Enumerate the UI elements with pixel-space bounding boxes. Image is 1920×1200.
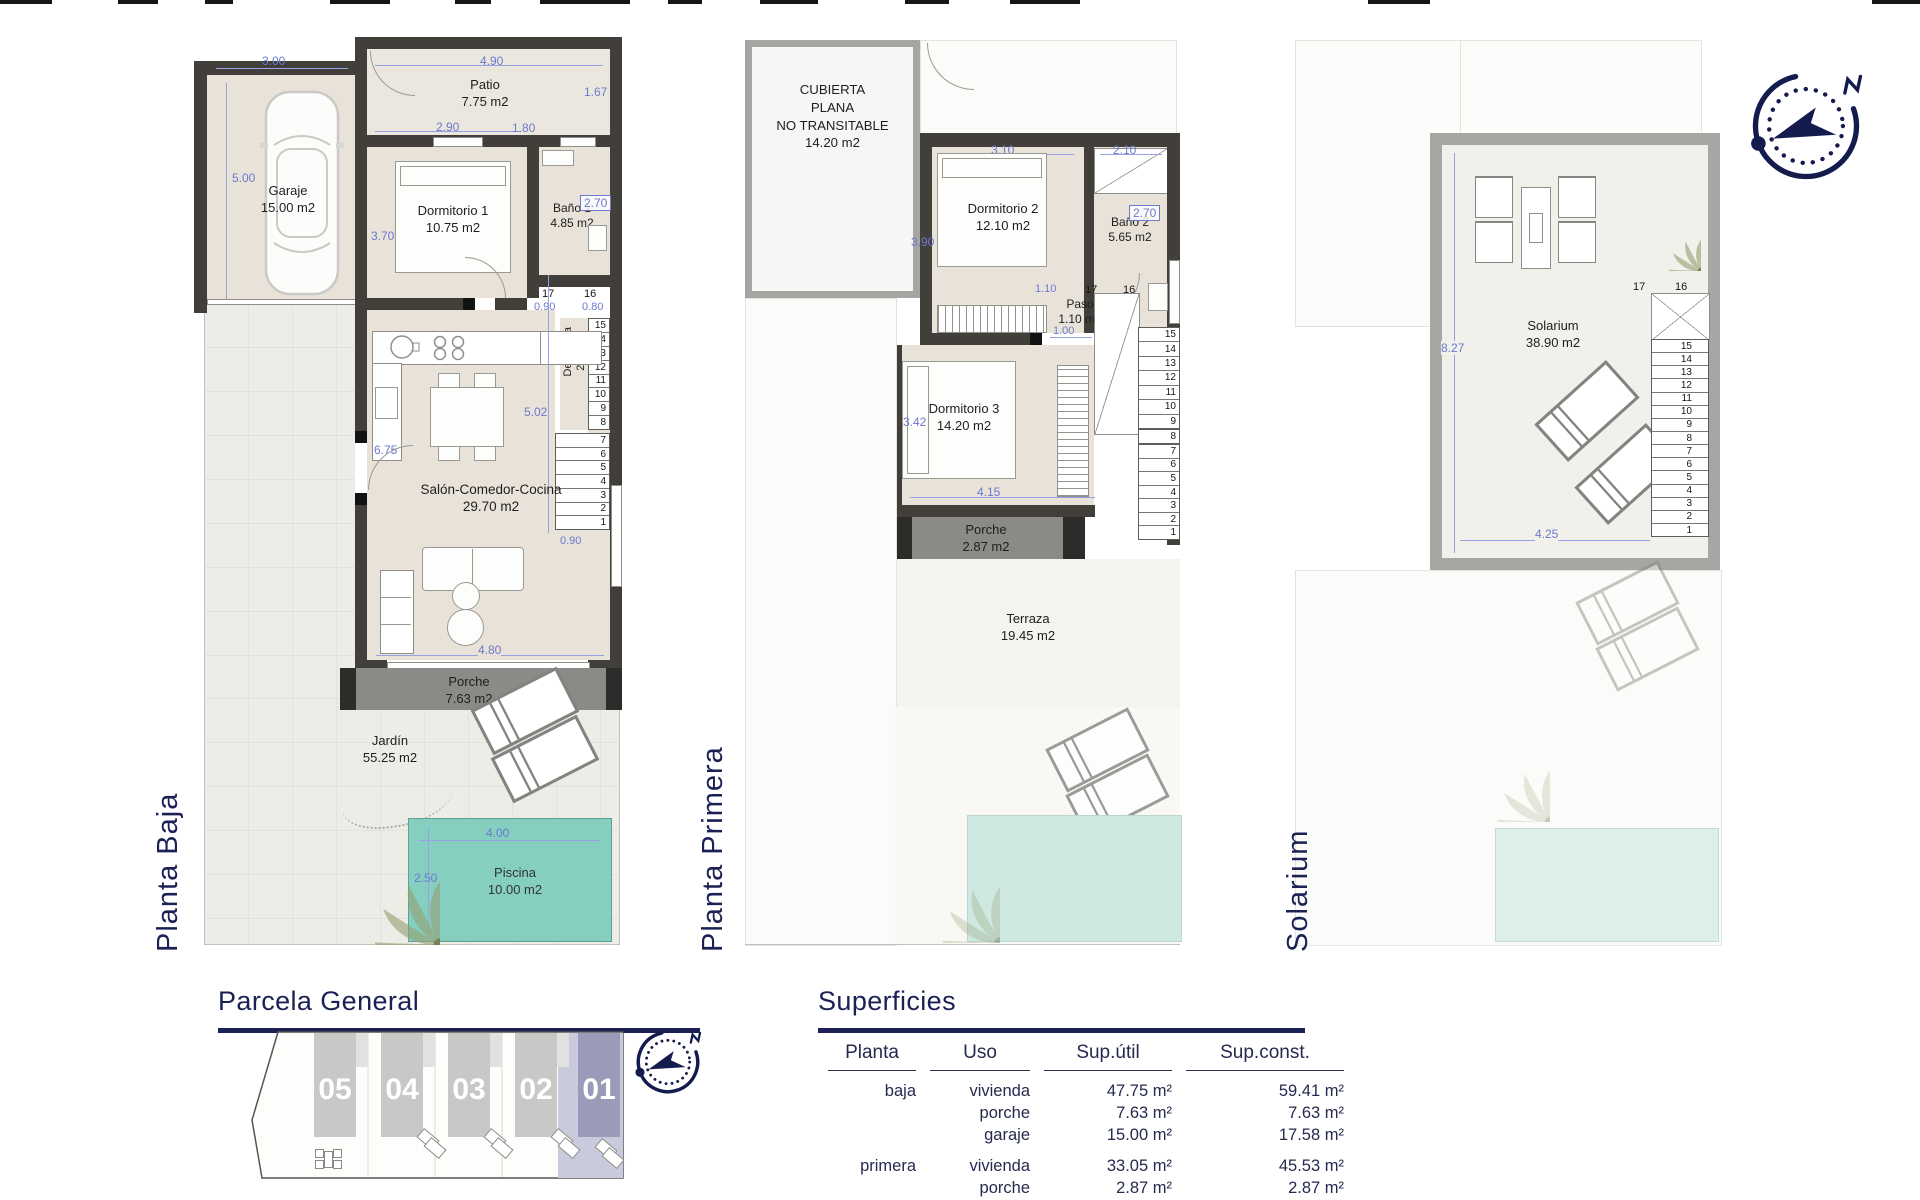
- appliance: [375, 387, 398, 419]
- plot-patio: [490, 1033, 502, 1067]
- palm-tree-icon: [1637, 207, 1701, 271]
- cropped-text-mark: [1872, 0, 1920, 4]
- dimension: 3.00: [262, 54, 285, 68]
- wall: [194, 61, 207, 313]
- bookshelf-line: [381, 597, 411, 598]
- label-garaje: Garaje15.00 m2: [238, 183, 338, 216]
- dimension-line: [216, 68, 348, 69]
- staircase-mid: 8: [1138, 429, 1180, 444]
- dining-chair: [474, 373, 496, 388]
- cell-uso: porche: [930, 1177, 1030, 1199]
- col-header-planta: Planta: [828, 1042, 916, 1071]
- shutter: [1057, 365, 1089, 497]
- palm-tree-icon: [885, 828, 1000, 943]
- hob-icon: [428, 334, 472, 361]
- cropped-text-mark: [118, 0, 158, 4]
- sink: [542, 150, 574, 166]
- dimension-line: [910, 497, 1095, 498]
- dimension: 1.00: [1053, 325, 1074, 337]
- cell-const: 2.87 m²: [1186, 1177, 1344, 1199]
- room-salon: [588, 430, 610, 433]
- bookshelf: [380, 570, 414, 654]
- wall: [539, 275, 622, 287]
- dimension: 5.02: [524, 405, 547, 419]
- door-opening: [355, 443, 367, 493]
- door-jamb: [463, 298, 475, 310]
- pool-ghost: [1495, 828, 1719, 942]
- porch-pillar: [606, 668, 622, 710]
- ground-floor-ghost: [745, 298, 897, 946]
- round-chair: [447, 609, 484, 646]
- cell-uso: porche: [930, 1102, 1030, 1124]
- palm-tree-icon: [1445, 717, 1550, 822]
- floorplan-solarium: Solarium38.90 m2 8.27 4.25 17 16 1514131…: [1255, 35, 1740, 950]
- cell-const: 17.58 m²: [1186, 1124, 1344, 1146]
- kitchen-cabinet: [540, 331, 602, 365]
- stair-number: 16: [584, 288, 596, 300]
- floorplan-planta-primera: CUBIERTA PLANA NO TRANSITABLE 14.20 m2 3…: [705, 35, 1185, 950]
- bed-pillow: [400, 166, 506, 186]
- cell-util: 33.05 m²: [1044, 1155, 1172, 1177]
- wall: [920, 333, 1030, 345]
- dimension: 1.67: [584, 85, 607, 99]
- bookshelf-line: [381, 624, 411, 625]
- dimension: 2.10: [1113, 143, 1136, 157]
- cropped-text-mark: [1010, 0, 1080, 4]
- lower-floor-ghost: [1460, 40, 1702, 142]
- dimension: 3.70: [371, 229, 394, 243]
- bed-pillow: [942, 158, 1042, 178]
- deck-chair: [1558, 221, 1596, 263]
- plan-title-solarium: Solarium: [1282, 828, 1315, 952]
- dining-chair: [438, 446, 460, 461]
- cell-const: 7.63 m²: [1186, 1102, 1344, 1124]
- deck-chair: [1558, 176, 1596, 218]
- wall: [355, 37, 367, 320]
- wall: [355, 660, 387, 668]
- parcel-boundary: [619, 698, 620, 945]
- label-solarium: Solarium38.90 m2: [1493, 318, 1613, 351]
- cell-const: 59.41 m²: [1186, 1080, 1344, 1102]
- cropped-text-mark: [668, 0, 702, 4]
- plan-title-planta-baja: Planta Baja: [152, 782, 185, 952]
- dimension: 0.90: [560, 535, 581, 547]
- plot-number-03: 03: [448, 1075, 490, 1105]
- wall: [355, 37, 622, 49]
- dimension: 1.10: [1035, 283, 1056, 295]
- col-header-sup-util: Sup.útil: [1044, 1042, 1172, 1071]
- cell-planta: primera: [828, 1155, 916, 1177]
- dimension: 4.25: [1535, 527, 1558, 541]
- window: [1169, 260, 1180, 324]
- room-salon: [555, 530, 610, 660]
- door-jamb: [355, 431, 367, 443]
- palm-tree-icon: [310, 815, 440, 945]
- staircase-upper: 1514131211109: [1138, 327, 1180, 429]
- plot-patio: [356, 1033, 368, 1067]
- wall: [367, 298, 463, 310]
- dimension: 3.42: [903, 415, 926, 429]
- dining-chair: [438, 373, 460, 388]
- spacer: [828, 1071, 1344, 1080]
- plot-patio: [423, 1033, 435, 1067]
- parcel-boundary: [204, 303, 205, 945]
- spacer: [828, 1146, 1344, 1155]
- cell-uso: vivienda: [930, 1080, 1030, 1102]
- cell-planta: [828, 1124, 916, 1146]
- label-dormitorio1: Dormitorio 110.75 m2: [398, 203, 508, 236]
- wall: [890, 505, 1095, 517]
- plot-number-01: 01: [578, 1075, 620, 1105]
- label-piscina: Piscina10.00 m2: [460, 865, 570, 898]
- cropped-text-mark: [540, 0, 630, 4]
- cropped-text-mark: [205, 0, 233, 4]
- wall: [495, 298, 527, 310]
- parcela-title: Parcela General: [218, 986, 419, 1017]
- dining-table: [430, 387, 504, 447]
- label-dormitorio2: Dormitorio 212.10 m2: [943, 201, 1063, 234]
- dining-chair: [474, 446, 496, 461]
- label-salon: Salón-Comedor-Cocina29.70 m2: [402, 481, 580, 516]
- dimension: 4.80: [478, 643, 501, 657]
- stair-number: 17: [1633, 281, 1645, 293]
- cell-uso: garaje: [930, 1124, 1030, 1146]
- floorplan-sheet: 3.00 5.00 Garaje15.00 m2 4.90 Patio7.75 …: [0, 0, 1920, 1200]
- garage-door: [207, 299, 357, 305]
- cell-const: 45.53 m²: [1186, 1155, 1344, 1177]
- label-porche2: Porche2.87 m2: [931, 522, 1041, 555]
- superficies-title: Superficies: [818, 986, 956, 1017]
- cropped-text-mark: [330, 0, 390, 4]
- title-rule: [818, 1028, 1305, 1033]
- sofa-divider: [472, 549, 473, 587]
- porch-pillar: [1063, 517, 1085, 559]
- tall-window: [611, 485, 622, 587]
- plot-number-05: 05: [314, 1075, 356, 1105]
- plot-number-04: 04: [381, 1075, 423, 1105]
- wardrobe: [937, 305, 1047, 333]
- toilet: [588, 225, 607, 251]
- sink: [1148, 283, 1168, 311]
- cropped-text-mark: [760, 0, 818, 4]
- plot-number-02: 02: [515, 1075, 557, 1105]
- cell-planta: [828, 1177, 916, 1199]
- porch-pillar: [340, 668, 356, 710]
- north-compass-icon: [1738, 58, 1874, 194]
- floorplan-planta-baja: 3.00 5.00 Garaje15.00 m2 4.90 Patio7.75 …: [190, 35, 632, 950]
- parcel-boundary: [745, 944, 1180, 945]
- dimension: 4.90: [480, 54, 503, 68]
- label-jardin: Jardín55.25 m2: [340, 733, 440, 766]
- wall: [588, 660, 622, 668]
- cell-util: 7.63 m²: [1044, 1102, 1172, 1124]
- cell-planta: baja: [828, 1080, 916, 1102]
- round-chair: [452, 582, 480, 610]
- window: [433, 137, 483, 147]
- plan-title-planta-primera: Planta Primera: [697, 726, 730, 952]
- stairwell: [1094, 293, 1140, 435]
- mini-table-set-icon: [315, 1149, 343, 1169]
- dimension-line: [418, 840, 600, 841]
- label-patio: Patio7.75 m2: [430, 77, 540, 110]
- stair-number: 16: [1675, 281, 1687, 293]
- cell-uso: vivienda: [930, 1155, 1030, 1177]
- door-jamb: [1030, 333, 1042, 345]
- deck-chair: [1475, 176, 1513, 218]
- plot-patio: [557, 1033, 569, 1067]
- col-header-sup-const: Sup.const.: [1186, 1042, 1344, 1071]
- cropped-text-mark: [455, 0, 491, 4]
- deck-table-inner: [1529, 213, 1543, 243]
- cropped-text-mark: [905, 0, 949, 4]
- dimension: 2.70: [580, 195, 611, 211]
- label-cubierta: CUBIERTA PLANA NO TRANSITABLE 14.20 m2: [752, 81, 913, 152]
- wall: [920, 133, 1180, 147]
- window: [560, 137, 596, 147]
- cell-util: 2.87 m²: [1044, 1177, 1172, 1199]
- deck-chair: [1475, 221, 1513, 263]
- col-header-uso: Uso: [930, 1042, 1030, 1071]
- stair-landing: [1651, 293, 1710, 341]
- staircase: 151413121110987654321: [1651, 339, 1709, 537]
- dimension-line: [1050, 337, 1092, 338]
- superficies-table: Planta Uso Sup.útil Sup.const. baja vivi…: [828, 1042, 1344, 1200]
- kitchen-sink-icon: [382, 333, 422, 361]
- dimension: 2.70: [1129, 205, 1160, 221]
- dimension: 3.90: [911, 235, 934, 249]
- label-terraza: Terraza19.45 m2: [973, 611, 1083, 644]
- dimension-line: [226, 83, 227, 299]
- dimension: 4.15: [977, 485, 1000, 499]
- dimension: 1.80: [512, 121, 535, 135]
- north-compass-icon: [628, 1022, 708, 1102]
- dimension: 4.00: [486, 826, 509, 840]
- cropped-text-mark: [1368, 0, 1430, 4]
- cell-planta: [828, 1102, 916, 1124]
- cell-util: 15.00 m²: [1044, 1124, 1172, 1146]
- door-jamb: [355, 493, 367, 505]
- dimension: 8.27: [1441, 341, 1464, 355]
- dimension: 2.90: [436, 120, 459, 134]
- cell-util: 47.75 m²: [1044, 1080, 1172, 1102]
- dimension: 0.80: [582, 301, 603, 313]
- cropped-text-mark: [0, 0, 52, 4]
- staircase-lower: 7654321: [1138, 444, 1180, 540]
